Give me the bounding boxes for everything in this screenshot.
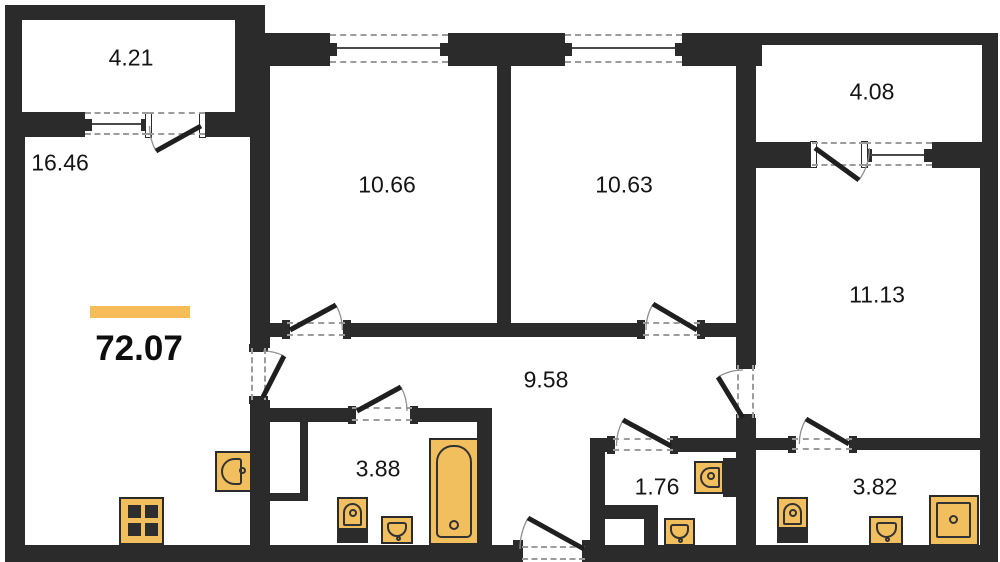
door-opening (287, 322, 345, 324)
room-area-label-bathroom: 3.88 (356, 456, 401, 483)
wall-segment (590, 440, 605, 545)
door-opening (251, 348, 253, 400)
window-glass-line (871, 154, 924, 156)
window-block (924, 149, 933, 162)
wall-segment (5, 112, 25, 562)
wall-segment (673, 438, 736, 452)
door-opening (352, 407, 412, 409)
room-area-label-balcony-left: 4.21 (109, 45, 154, 72)
door-opening (812, 164, 865, 166)
toilet-tank-icon (723, 458, 737, 497)
door-opening (643, 322, 700, 324)
door-opening (148, 112, 205, 114)
sink-icon (664, 518, 695, 546)
floor-plan: 4.21 16.46 10.66 10.63 4.08 11.13 9.58 3… (0, 0, 1000, 562)
door-opening (264, 348, 266, 400)
wall-segment (5, 5, 252, 20)
wall-segment (736, 33, 756, 365)
wall-segment (644, 519, 658, 546)
door-opening (752, 365, 754, 418)
bathtub-icon (429, 438, 479, 545)
room-area-label-bedroom-1: 10.66 (358, 172, 416, 199)
window-block (328, 43, 337, 56)
kitchen-sink-icon (215, 451, 252, 492)
door-opening (522, 546, 585, 548)
window-glass-line (337, 47, 440, 49)
window (865, 142, 932, 144)
wall-segment (585, 545, 998, 562)
wall-segment (250, 408, 352, 422)
window (85, 133, 148, 135)
window-glass-line (572, 47, 675, 49)
door-opening (613, 438, 673, 440)
door-opening (792, 438, 852, 440)
door-opening (352, 419, 412, 421)
room-area-label-bedroom-2: 10.63 (595, 172, 653, 199)
window-block (440, 43, 449, 56)
door-opening (792, 448, 852, 450)
door-opening (522, 558, 585, 560)
window (565, 61, 682, 63)
window-block (83, 119, 92, 131)
room-area-label-balcony-right: 4.08 (850, 79, 895, 106)
total-area-label: 72.07 (95, 329, 183, 369)
room-area-label-living-room: 16.46 (31, 150, 89, 177)
window (85, 112, 148, 114)
wall-segment (5, 545, 522, 562)
wall-segment (448, 33, 565, 66)
door-opening (287, 334, 345, 336)
toilet-tank-icon (337, 529, 368, 543)
total-area-underline (90, 306, 190, 318)
window-block (675, 43, 684, 56)
door-opening (737, 365, 739, 418)
wall-segment (932, 142, 982, 168)
window (330, 34, 448, 36)
toilet-icon (337, 497, 368, 530)
room-area-label-bedroom-3: 11.13 (849, 282, 905, 309)
wall-segment (270, 493, 308, 501)
wall-segment (477, 408, 492, 545)
wall-segment (982, 33, 998, 152)
door-opening (613, 449, 673, 451)
door-opening (643, 334, 700, 336)
wall-segment (250, 33, 330, 66)
wall-segment (345, 323, 643, 337)
wall-segment (497, 66, 511, 323)
window-glass-line (92, 123, 141, 125)
toilet-icon (694, 461, 724, 494)
wall-segment (756, 33, 998, 45)
wall-segment (5, 5, 22, 118)
door-opening (812, 142, 865, 144)
wall-segment (700, 323, 736, 337)
window-block (563, 43, 572, 56)
toilet-tank-icon (777, 528, 808, 543)
stove-icon (119, 497, 164, 545)
wall-segment (250, 66, 270, 348)
wall-segment (590, 505, 658, 519)
wall-segment (852, 438, 980, 450)
wall-segment (756, 438, 792, 450)
wall-segment (300, 422, 308, 501)
window (865, 164, 932, 166)
toilet-icon (777, 497, 808, 529)
sink-icon (381, 516, 413, 544)
room-area-label-hallway: 9.58 (524, 367, 569, 394)
window (565, 34, 682, 36)
wall-segment (980, 142, 998, 562)
sink-icon (869, 516, 903, 545)
wall-segment (736, 418, 756, 562)
door-opening (148, 133, 205, 135)
room-area-label-wc: 1.76 (635, 474, 680, 501)
shower-icon (929, 495, 979, 546)
window (330, 61, 448, 63)
room-area-label-ensuite: 3.82 (853, 474, 898, 501)
